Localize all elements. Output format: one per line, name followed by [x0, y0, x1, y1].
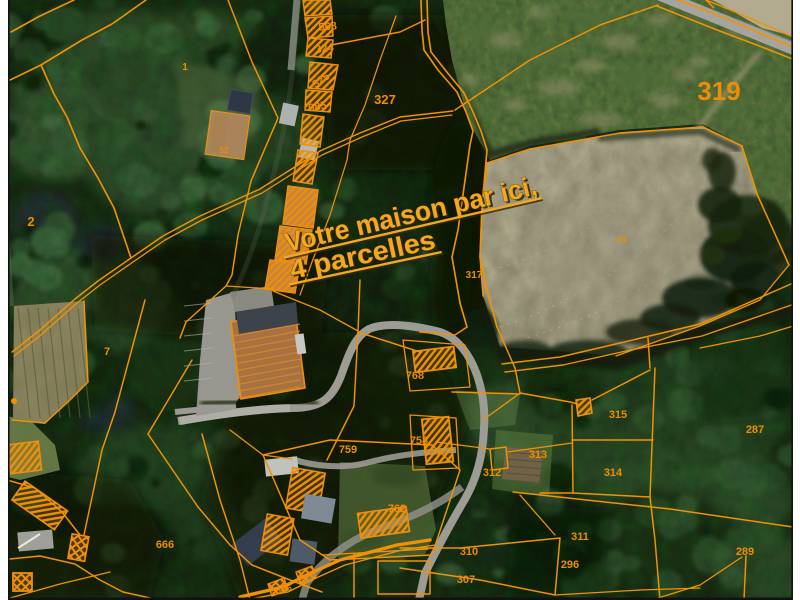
svg-text:313: 313 [529, 449, 547, 461]
svg-text:289: 289 [736, 546, 754, 558]
svg-text:666: 666 [156, 539, 174, 551]
svg-text:311: 311 [571, 531, 589, 543]
svg-text:312: 312 [483, 467, 501, 479]
svg-text:7: 7 [104, 346, 110, 358]
svg-text:317: 317 [466, 270, 483, 281]
svg-text:1: 1 [182, 62, 188, 73]
svg-text:310: 310 [460, 546, 478, 558]
svg-text:296: 296 [561, 559, 579, 571]
svg-text:315: 315 [609, 409, 627, 421]
svg-text:314: 314 [604, 467, 623, 479]
svg-text:758: 758 [410, 435, 428, 447]
svg-text:2: 2 [27, 214, 34, 229]
svg-text:568: 568 [318, 20, 337, 34]
svg-text:287: 287 [746, 424, 764, 436]
svg-text:759: 759 [339, 444, 357, 456]
svg-text:84: 84 [618, 235, 627, 244]
svg-text:307: 307 [457, 574, 475, 586]
svg-text:762: 762 [388, 503, 406, 515]
svg-text:319: 319 [697, 76, 740, 106]
svg-text:768: 768 [406, 370, 424, 382]
svg-text:52: 52 [220, 146, 229, 155]
svg-text:327: 327 [374, 92, 396, 107]
